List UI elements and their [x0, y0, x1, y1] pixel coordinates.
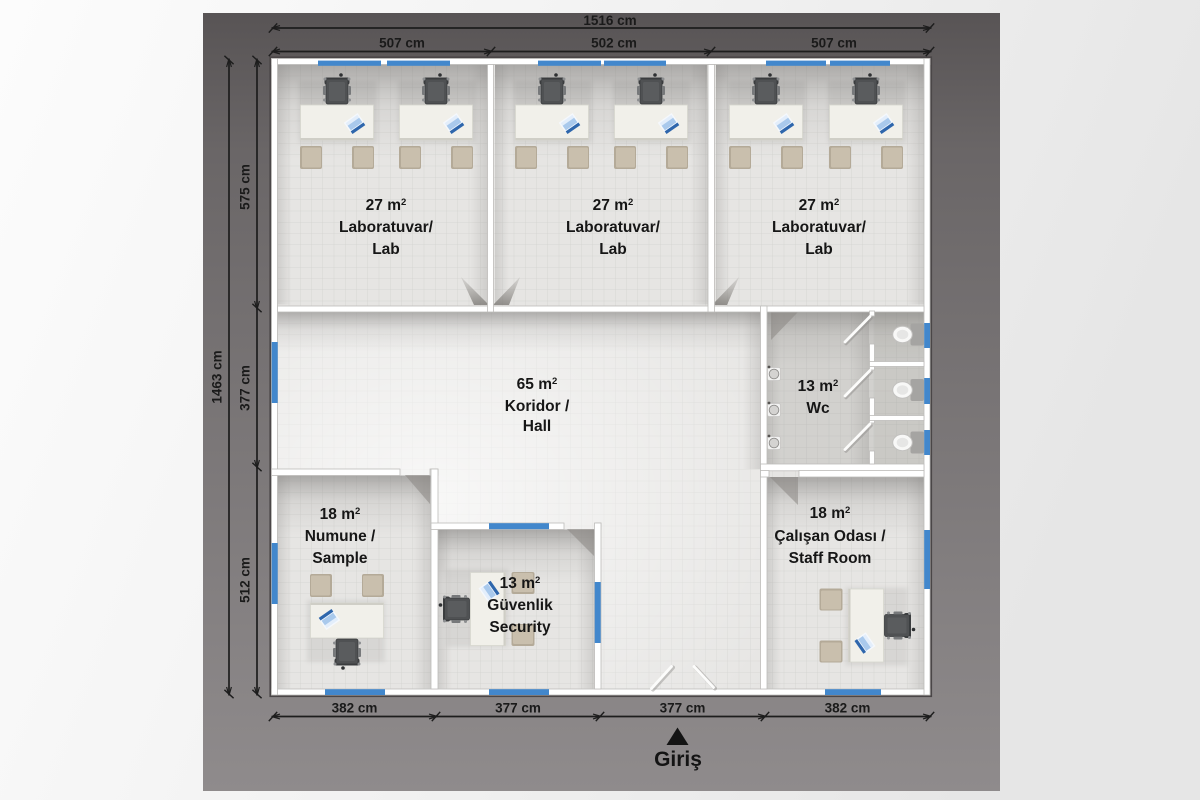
svg-text:512 cm: 512 cm — [238, 557, 253, 603]
svg-text:65 m2: 65 m2 — [517, 376, 558, 393]
svg-text:Lab: Lab — [805, 241, 833, 258]
svg-text:Numune /: Numune / — [305, 528, 376, 545]
svg-text:382 cm: 382 cm — [825, 701, 871, 716]
svg-text:Lab: Lab — [372, 241, 400, 258]
svg-text:18 m2: 18 m2 — [810, 505, 851, 522]
svg-text:507 cm: 507 cm — [379, 36, 425, 51]
svg-text:Laboratuvar/: Laboratuvar/ — [339, 219, 434, 236]
svg-text:27 m2: 27 m2 — [593, 197, 634, 214]
svg-text:Lab: Lab — [599, 241, 627, 258]
svg-text:27 m2: 27 m2 — [799, 197, 840, 214]
svg-text:Security: Security — [489, 619, 551, 636]
svg-text:27 m2: 27 m2 — [366, 197, 407, 214]
svg-text:377 cm: 377 cm — [238, 365, 253, 411]
svg-text:Staff Room: Staff Room — [789, 550, 872, 567]
svg-text:Güvenlik: Güvenlik — [487, 597, 553, 614]
svg-text:13 m2: 13 m2 — [798, 378, 839, 395]
svg-text:Çalışan Odası /: Çalışan Odası / — [774, 528, 886, 545]
svg-text:Sample: Sample — [312, 550, 368, 567]
svg-text:Hall: Hall — [523, 418, 551, 435]
svg-text:382 cm: 382 cm — [332, 701, 378, 716]
svg-text:13 m2: 13 m2 — [500, 575, 541, 592]
svg-text:Giriş: Giriş — [654, 748, 702, 771]
svg-text:1463 cm: 1463 cm — [210, 350, 225, 403]
svg-text:Laboratuvar/: Laboratuvar/ — [566, 219, 661, 236]
svg-text:377 cm: 377 cm — [495, 701, 541, 716]
svg-text:507 cm: 507 cm — [811, 36, 857, 51]
svg-text:1516 cm: 1516 cm — [583, 13, 636, 28]
svg-text:575 cm: 575 cm — [238, 164, 253, 210]
svg-text:Koridor /: Koridor / — [505, 398, 570, 415]
svg-text:18 m2: 18 m2 — [320, 506, 361, 523]
svg-text:377 cm: 377 cm — [660, 701, 706, 716]
svg-text:Laboratuvar/: Laboratuvar/ — [772, 219, 867, 236]
svg-text:502 cm: 502 cm — [591, 36, 637, 51]
svg-text:Wc: Wc — [806, 400, 830, 417]
